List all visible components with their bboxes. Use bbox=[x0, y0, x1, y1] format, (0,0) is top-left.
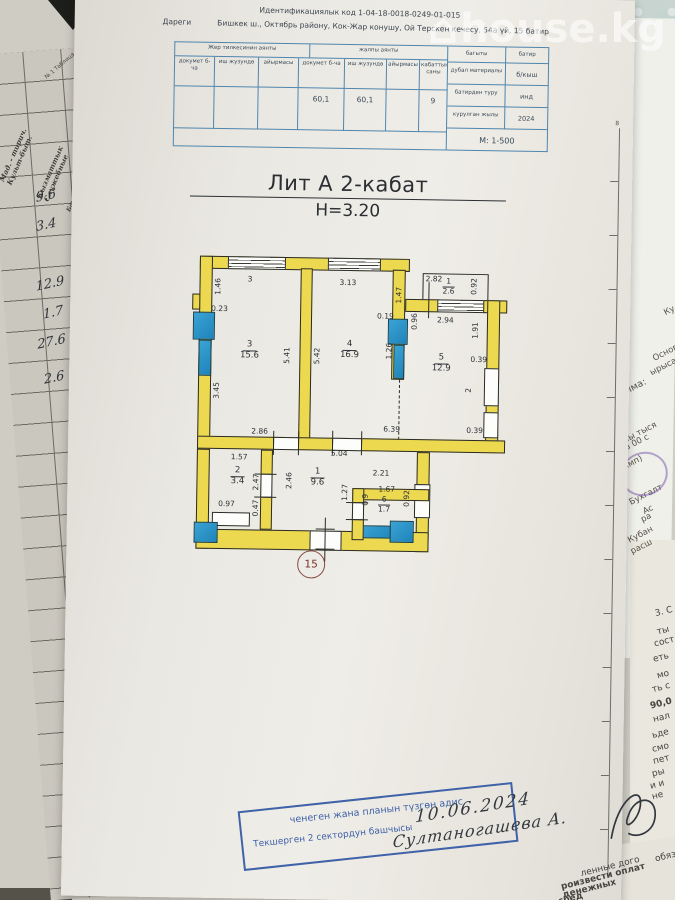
floor-plan: 1.46 0.23 3 3.13 2.82 0.92 1.47 0.19 0.9… bbox=[193, 246, 510, 591]
window-top-middle bbox=[328, 258, 381, 272]
window-left bbox=[198, 340, 212, 376]
dimension-label: 0.47 bbox=[251, 500, 260, 517]
door-tick bbox=[273, 431, 274, 455]
window-bottom-sill bbox=[390, 521, 414, 543]
wc-label: 6 1.7 bbox=[366, 495, 402, 514]
watermark: ⌂ house.kg bbox=[428, 4, 666, 53]
door-tick bbox=[361, 431, 362, 455]
room-area: 12.9 bbox=[418, 364, 464, 374]
balcony-label: 1 2.6 bbox=[431, 277, 465, 296]
room-area: 15.6 bbox=[226, 351, 272, 361]
window-bottom-left bbox=[193, 522, 217, 543]
dimension-label: 2.21 bbox=[373, 468, 390, 477]
ledger-handwritten-value: 27.6 bbox=[37, 331, 66, 352]
dimension-label: 2.94 bbox=[437, 315, 454, 324]
dimension-label: 1.47 bbox=[394, 287, 403, 304]
dimension-label: 5.04 bbox=[331, 449, 348, 458]
dimension-label: 1.91 bbox=[471, 322, 480, 339]
wall-room5-top-left bbox=[405, 299, 439, 313]
col-header-doc: докумет б-ча bbox=[175, 56, 215, 87]
balcony-window bbox=[437, 299, 485, 313]
dimension-label: 1.67 bbox=[378, 484, 395, 493]
wall-notch bbox=[192, 294, 200, 310]
door-tick bbox=[298, 431, 299, 455]
room-area: 3.4 bbox=[216, 477, 258, 487]
dimension-label: 5.41 bbox=[282, 347, 291, 364]
flat-type-label: батирден туру bbox=[447, 85, 505, 108]
ruler-mark: 8 bbox=[615, 120, 619, 127]
plan-title: Лит А 2-кабат bbox=[190, 169, 506, 201]
room-label-5: 5 12.9 bbox=[418, 353, 464, 374]
flat-type-value: инд bbox=[505, 85, 548, 108]
signature-flourish bbox=[601, 782, 670, 846]
window-middle bbox=[393, 345, 405, 379]
plan-title-block: Лит А 2-кабат Н=3.20 bbox=[190, 169, 507, 223]
col-header-diff2: айырмасы bbox=[387, 60, 420, 91]
dimension-label: 1.57 bbox=[231, 452, 248, 461]
door-room2 bbox=[260, 474, 272, 498]
room-area: 9.6 bbox=[296, 478, 338, 488]
dimension-label: 6.39 bbox=[383, 425, 400, 434]
wall-material-value: б/кыш bbox=[506, 63, 549, 86]
col-header-fact: иш жузундө bbox=[215, 57, 259, 88]
ledger-handwritten-value: 9.6 bbox=[35, 186, 56, 206]
dimension-label: 1.46 bbox=[213, 278, 222, 295]
dimension-label: 0.23 bbox=[211, 304, 228, 313]
page-fold-ruler: 8 bbox=[599, 128, 620, 876]
land-doc-value bbox=[174, 86, 215, 129]
total-doc-value: 60,1 bbox=[298, 88, 345, 131]
window-top-left bbox=[228, 256, 286, 270]
ceiling-height: Н=3.20 bbox=[190, 198, 506, 223]
door-room3 bbox=[273, 437, 299, 450]
dimension-label: 2 bbox=[464, 388, 473, 393]
window-left-sill bbox=[193, 312, 215, 340]
room-label-2: 2 3.4 bbox=[216, 466, 258, 487]
watermark-text: house.kg bbox=[460, 6, 666, 52]
apartment-number-circle: 15 bbox=[297, 550, 325, 578]
dimension-label: 0.92 bbox=[402, 490, 411, 507]
hall-label: 1 9.6 bbox=[296, 467, 338, 488]
land-fact-value bbox=[214, 87, 259, 130]
area-table: Жер тилкесинин аянты жалпы аянты докумет… bbox=[173, 41, 550, 152]
room-label-4: 4 16.9 bbox=[326, 340, 372, 361]
dimension-label: 0.39 bbox=[466, 426, 483, 435]
ledger-handwritten-value: 2.6 bbox=[44, 368, 65, 388]
scale-label: М: 1-500 bbox=[447, 129, 548, 153]
dimension-label: 0.96 bbox=[410, 313, 419, 330]
room-label-3: 3 15.6 bbox=[226, 340, 272, 361]
total-fact-value: 60,1 bbox=[344, 89, 387, 132]
dimension-label: 0.19 bbox=[377, 311, 394, 320]
wall-material-label: дубал материалы bbox=[448, 63, 506, 86]
empty-row bbox=[174, 128, 447, 150]
dimension-label: 1.27 bbox=[340, 484, 349, 501]
area-table-left: Жер тилкесинин аянты жалпы аянты докумет… bbox=[173, 41, 449, 150]
window-middle-sill bbox=[388, 319, 408, 345]
dimension-label: 5.42 bbox=[312, 348, 321, 365]
room-area: 1.7 bbox=[366, 505, 402, 514]
dimension-label: 3 bbox=[248, 274, 253, 283]
wall-between-room3-room4 bbox=[298, 268, 313, 441]
col-header-floors: кабаттын саны bbox=[420, 60, 448, 90]
dimension-label: 0.97 bbox=[218, 499, 235, 508]
house-logo-icon: ⌂ bbox=[428, 4, 458, 53]
dimension-label: 1.26 bbox=[384, 343, 393, 360]
room-area: 16.9 bbox=[326, 350, 372, 360]
room-area: 2.6 bbox=[431, 287, 465, 296]
dimension-label: 3.45 bbox=[212, 382, 221, 399]
col-header-doc2: докумет б-ча bbox=[299, 58, 345, 89]
area-table-right: багыты батир дубал материалы б/кыш батир… bbox=[447, 46, 550, 153]
ledger-handwritten-value: 1.7 bbox=[42, 303, 63, 323]
total-diff-value bbox=[386, 90, 420, 133]
dimension-label: 2.86 bbox=[251, 426, 268, 435]
col-header-fact2: иш жузундө bbox=[345, 59, 387, 90]
land-diff-value bbox=[258, 88, 299, 131]
address-label: Дареги bbox=[162, 17, 191, 27]
floors-value: 9 bbox=[419, 90, 448, 132]
loggia-window-lower bbox=[483, 412, 498, 438]
dimension-label: 0.92 bbox=[469, 278, 478, 295]
photo-of-floorplan-document: Ку Основ ырыса Сумма: SD мы тыся ров 00 … bbox=[0, 0, 675, 900]
dimension-label: 0.39 bbox=[470, 355, 487, 364]
dimension-label: 3.13 bbox=[340, 278, 357, 287]
col-header-diff: айырмасы bbox=[259, 58, 299, 89]
door-tick bbox=[346, 519, 368, 520]
door-tick bbox=[254, 497, 276, 498]
loggia-window-upper bbox=[484, 368, 500, 406]
year-built-value: 2024 bbox=[505, 107, 548, 130]
year-built-label: курулган жылы bbox=[447, 107, 505, 130]
technical-passport-sheet: Идентификациялык код 1-04-18-0018-0249-0… bbox=[61, 0, 635, 900]
dimension-label: 2.46 bbox=[284, 472, 293, 489]
ledger-handwritten-value: 3.4 bbox=[36, 215, 57, 235]
